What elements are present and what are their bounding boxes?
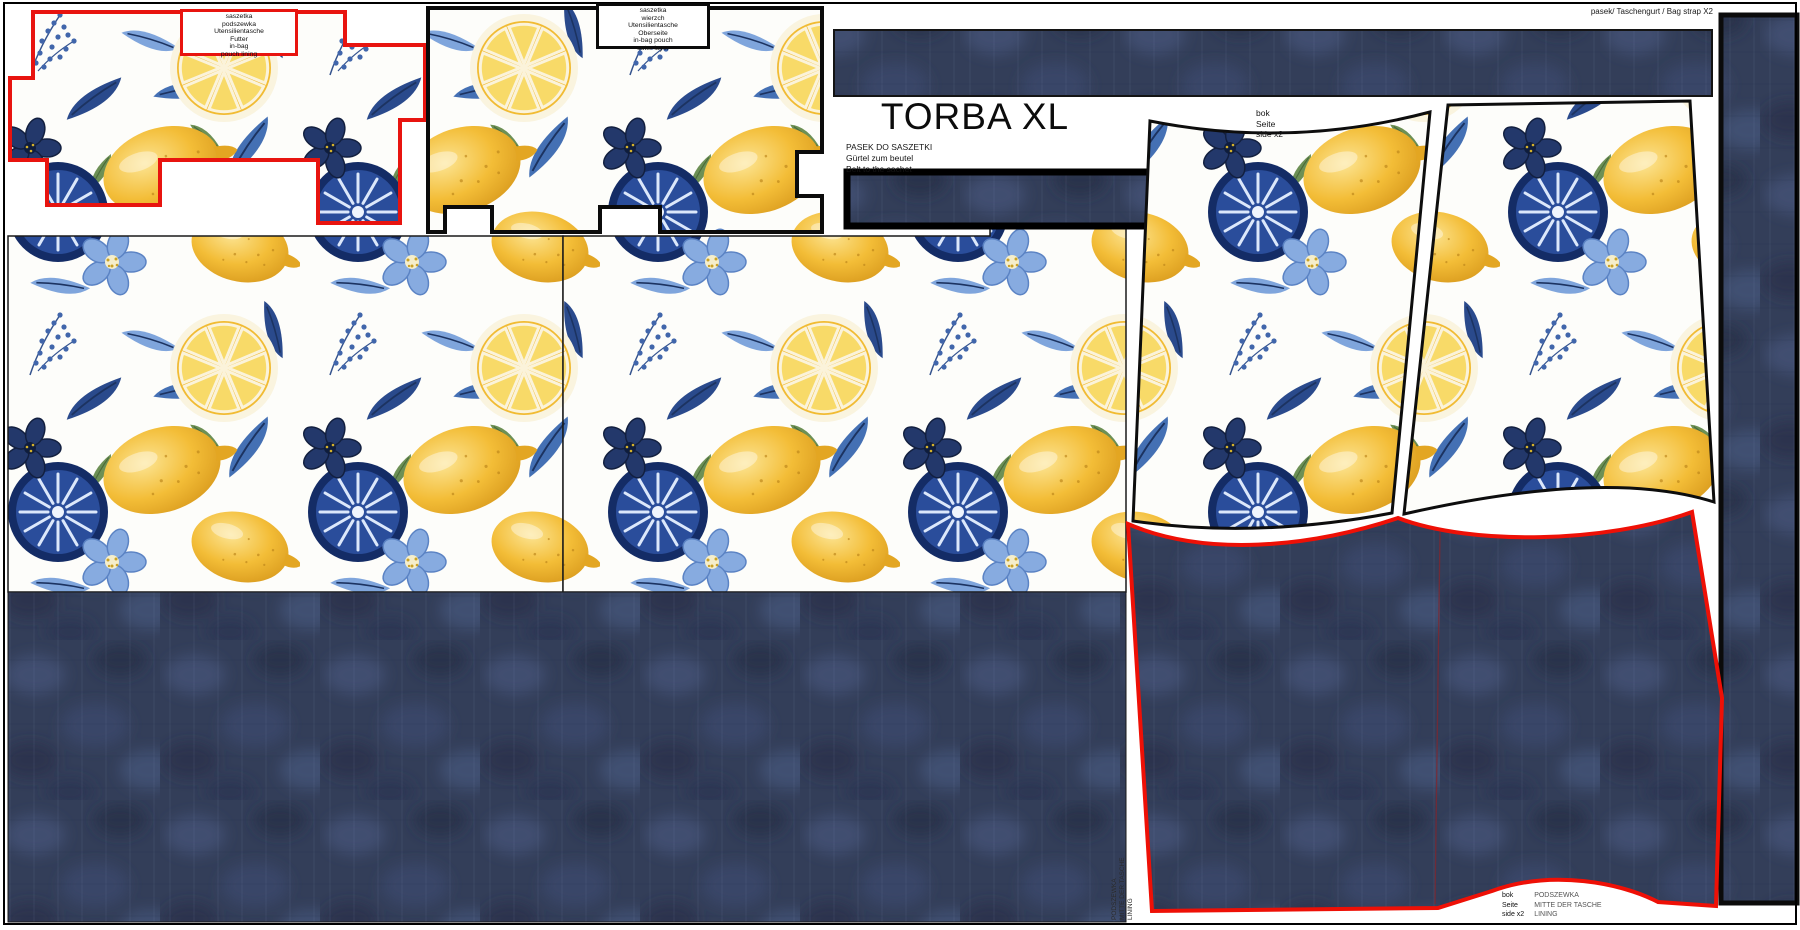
main-lining-panel bbox=[8, 592, 1126, 922]
belt-label: PASEK DO SASZETKI Gürtel zum beutel Belt… bbox=[846, 142, 932, 175]
pouch-outer-label-line: wierzch bbox=[599, 15, 707, 23]
side-lining-label-col-right: PODSZEWKA MITTE DER TASCHE LINING bbox=[1534, 891, 1601, 920]
belt-label-line: Belt to the sachet bbox=[846, 164, 932, 175]
belt-label-line: PASEK DO SASZETKI bbox=[846, 142, 932, 153]
side-lining-label-line: MITTE DER TASCHE bbox=[1534, 901, 1601, 911]
pouch-lining-label-line: in-bag bbox=[183, 43, 295, 51]
lining-vertical-label-line: PODSZEWKA bbox=[1111, 840, 1119, 920]
pattern-sheet-svg bbox=[0, 0, 1800, 930]
main-print-panel-left bbox=[8, 236, 563, 592]
side-lining-piece bbox=[1128, 512, 1722, 911]
side-piece-label-line: bok bbox=[1256, 108, 1283, 119]
pouch-outer-label-line: Oberseite bbox=[599, 30, 707, 38]
side-lining-label-line: bok bbox=[1502, 891, 1524, 901]
pouch-outer-label-line: in-bag pouch bbox=[599, 37, 707, 45]
main-print-panel-right bbox=[563, 208, 1126, 592]
vertical-bag-strap bbox=[1721, 15, 1797, 903]
belt-piece bbox=[847, 172, 1162, 226]
side-piece-left bbox=[1133, 112, 1430, 528]
horizontal-strap-strip bbox=[834, 30, 1712, 96]
side-piece-label: bok Seite side x2 bbox=[1256, 108, 1283, 140]
pouch-outer-label-line: saszetka bbox=[599, 7, 707, 15]
pouch-lining-label-line: pouch lining bbox=[183, 51, 295, 59]
pouch-lining-label-line: Futter bbox=[183, 36, 295, 44]
side-lining-label-line: side x2 bbox=[1502, 910, 1524, 920]
side-lining-label-line: PODSZEWKA bbox=[1534, 891, 1601, 901]
pouch-outer-label-line: Utensilientasche bbox=[599, 22, 707, 30]
lining-vertical-label-line: LINING bbox=[1127, 840, 1135, 920]
sewing-pattern-sheet: saszetka podszewka Utensilientasche Futt… bbox=[0, 0, 1800, 930]
page-title: TORBA XL bbox=[858, 96, 1092, 138]
lining-vertical-label-line: MITTE DER TASCHE bbox=[1119, 840, 1127, 920]
side-lining-label-line: Seite bbox=[1502, 901, 1524, 911]
belt-label-line: Gürtel zum beutel bbox=[846, 153, 932, 164]
pouch-lining-label-box: saszetka podszewka Utensilientasche Futt… bbox=[180, 9, 298, 56]
side-piece-right bbox=[1404, 101, 1714, 514]
side-lining-label-line: LINING bbox=[1534, 910, 1601, 920]
lining-vertical-label: PODSZEWKA MITTE DER TASCHE LINING bbox=[1111, 840, 1145, 920]
pouch-lining-label-line: Utensilientasche bbox=[183, 28, 295, 36]
pouch-outer-label-box: saszetka wierzch Utensilientasche Oberse… bbox=[596, 3, 710, 49]
pouch-lining-label-line: saszetka bbox=[183, 13, 295, 21]
pouch-lining-label-line: podszewka bbox=[183, 21, 295, 29]
pouch-outer-label-line: outer layer bbox=[599, 45, 707, 53]
bag-strap-label: pasek/ Taschengurt / Bag strap X2 bbox=[1450, 7, 1713, 16]
side-piece-label-line: Seite bbox=[1256, 119, 1283, 130]
side-piece-label-line: side x2 bbox=[1256, 129, 1283, 140]
side-lining-label: bok Seite side x2 PODSZEWKA MITTE DER TA… bbox=[1502, 891, 1602, 920]
side-lining-label-col-left: bok Seite side x2 bbox=[1502, 891, 1524, 920]
